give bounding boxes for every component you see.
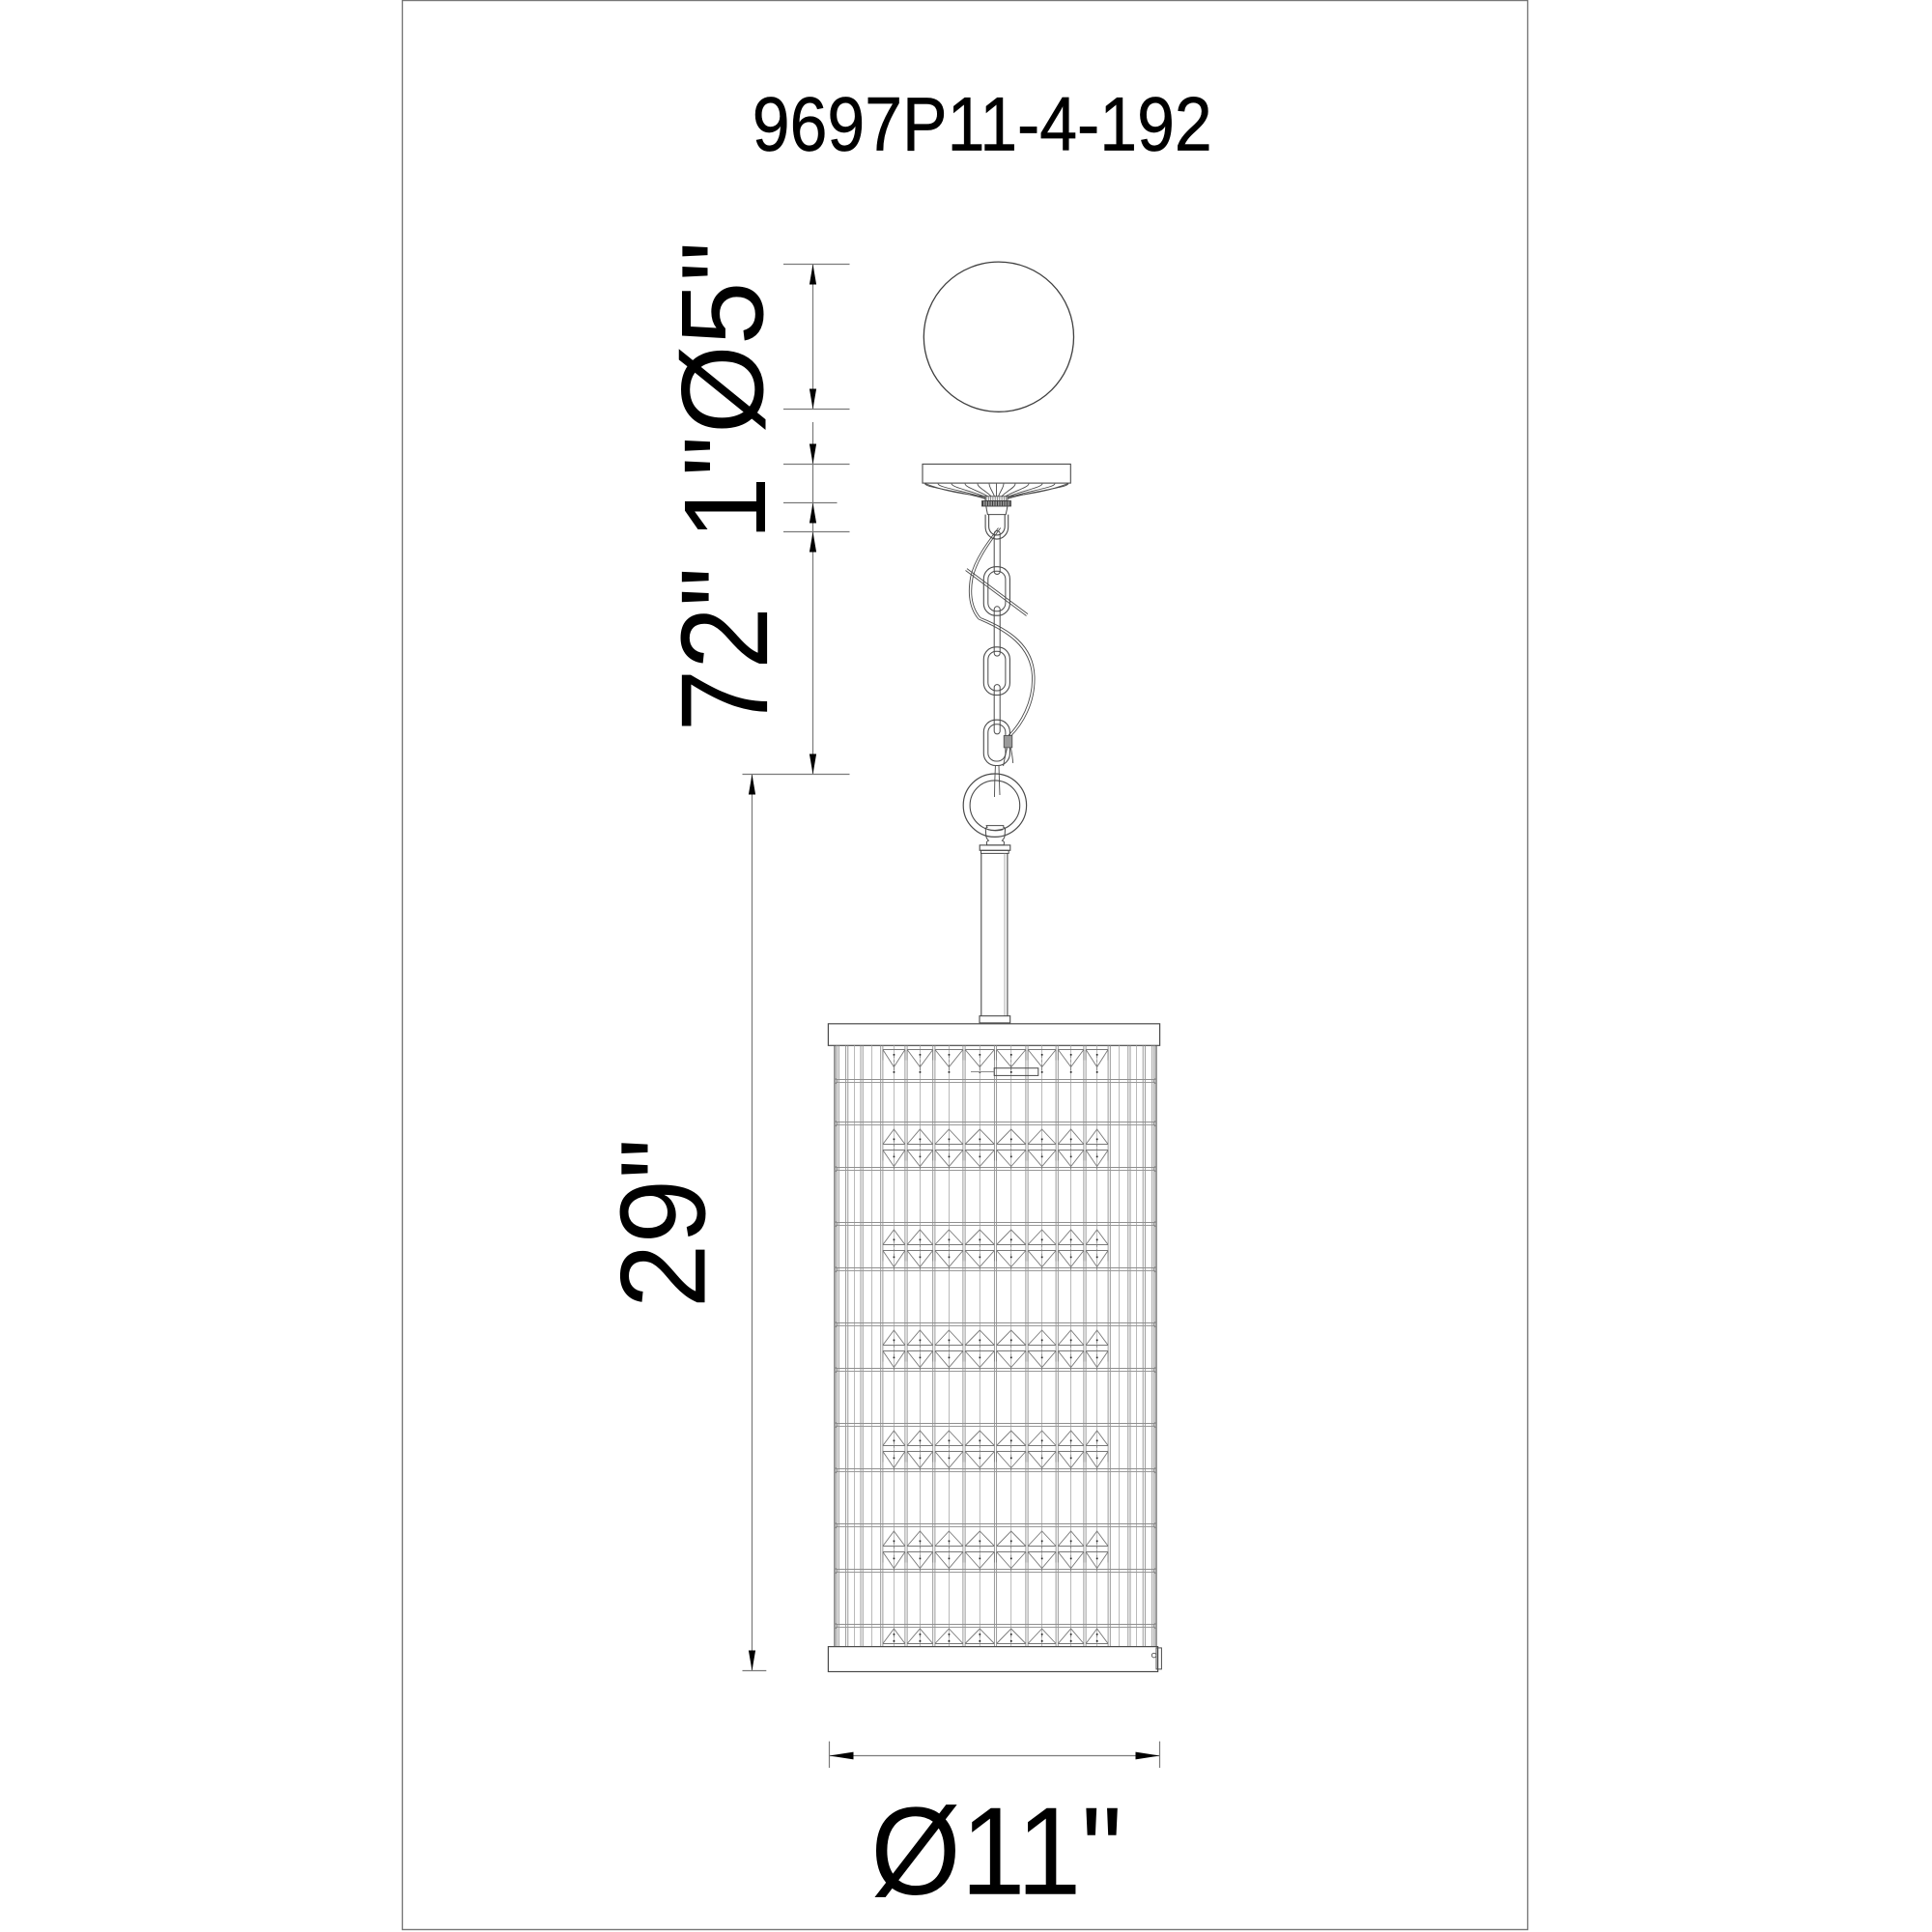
svg-text:1": 1": [660, 436, 790, 541]
svg-text:72": 72": [655, 567, 794, 731]
svg-text:29": 29": [596, 1138, 731, 1308]
svg-text:9697P11-4-192: 9697P11-4-192: [753, 81, 1212, 166]
svg-text:Ø11": Ø11": [870, 1782, 1122, 1921]
svg-text:Ø5": Ø5": [658, 241, 787, 434]
